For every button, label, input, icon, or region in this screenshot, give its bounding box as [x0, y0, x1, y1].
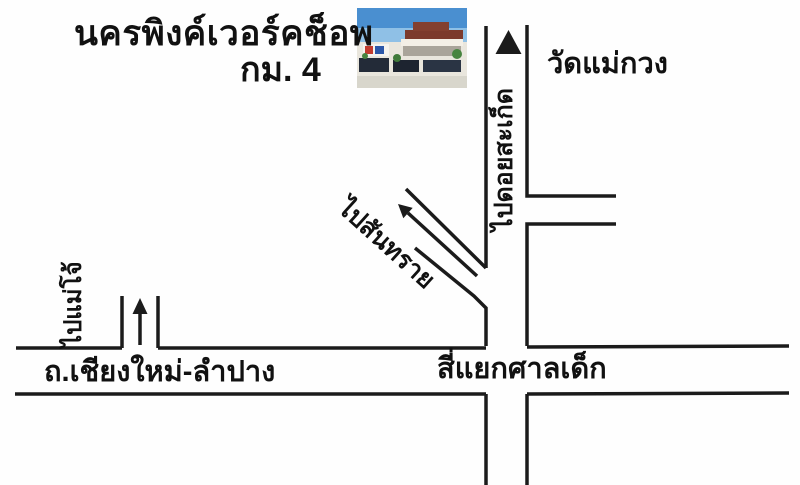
- location-photo: [357, 8, 467, 88]
- label-to-mae-jo: ไปแม่โจ้: [59, 261, 89, 347]
- label-san-dek-intersection: สี่แยกศาลเด็ก: [437, 351, 607, 387]
- up-arrow-icon: [133, 298, 148, 345]
- label-wat-mae-kuang: วัดแม่กวง: [547, 46, 668, 82]
- map-subtitle-km: กม. 4: [240, 49, 321, 92]
- map-title: นครพิงค์เวอร์คช็อพ: [74, 12, 373, 56]
- label-to-doi-saket: ไปดอยสะเก็ด: [489, 88, 520, 231]
- route-map: นครพิงค์เวอร์คช็อพ กม. 4 วัดแม่กวง ไปดอย…: [0, 0, 800, 485]
- triangle-up-icon: [496, 30, 522, 54]
- label-chiangmai-lampang-road: ถ.เชียงใหม่-ลำปาง: [44, 354, 275, 390]
